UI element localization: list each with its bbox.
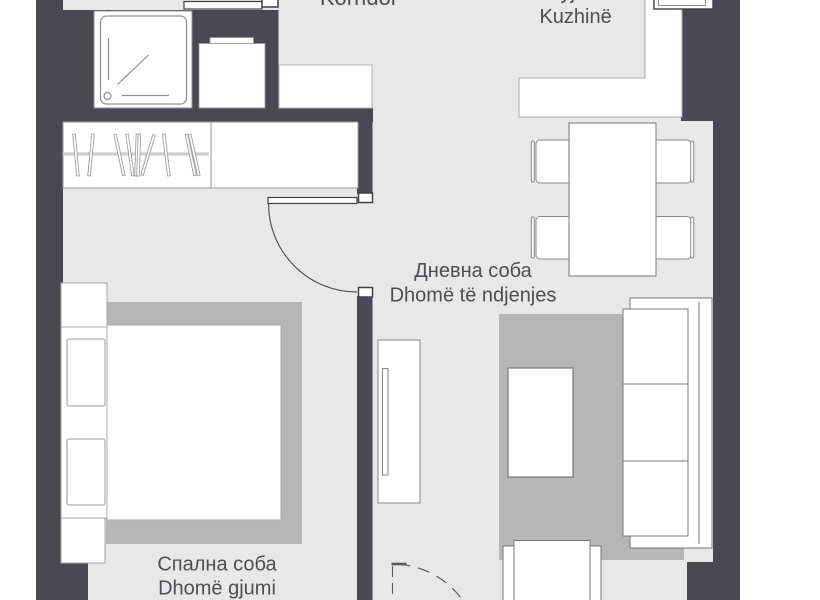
svg-text:Kuzhinë: Kuzhinë — [539, 6, 611, 28]
svg-text:Спална соба: Спална соба — [157, 554, 277, 576]
svg-text:Дневна соба: Дневна соба — [414, 260, 532, 282]
svg-text:Dhomë gjumi: Dhomë gjumi — [158, 578, 276, 600]
svg-text:Кујна: Кујна — [549, 0, 598, 4]
svg-text:Korridor: Korridor — [320, 0, 398, 10]
svg-text:Dhomë të ndjenjes: Dhomë të ndjenjes — [390, 285, 557, 307]
